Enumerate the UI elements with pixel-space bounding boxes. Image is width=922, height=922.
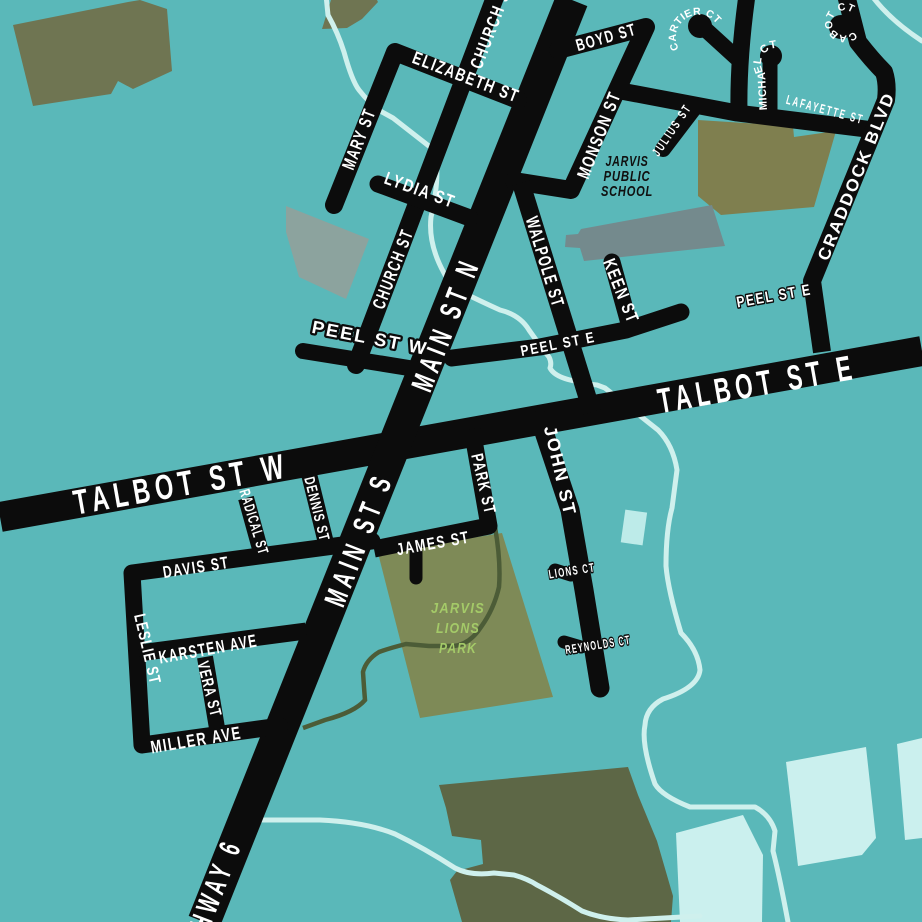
svg-text:LIONS: LIONS	[436, 620, 480, 637]
svg-text:PARK: PARK	[439, 640, 477, 657]
svg-text:SCHOOL: SCHOOL	[601, 183, 653, 200]
svg-text:JARVIS: JARVIS	[431, 600, 485, 617]
